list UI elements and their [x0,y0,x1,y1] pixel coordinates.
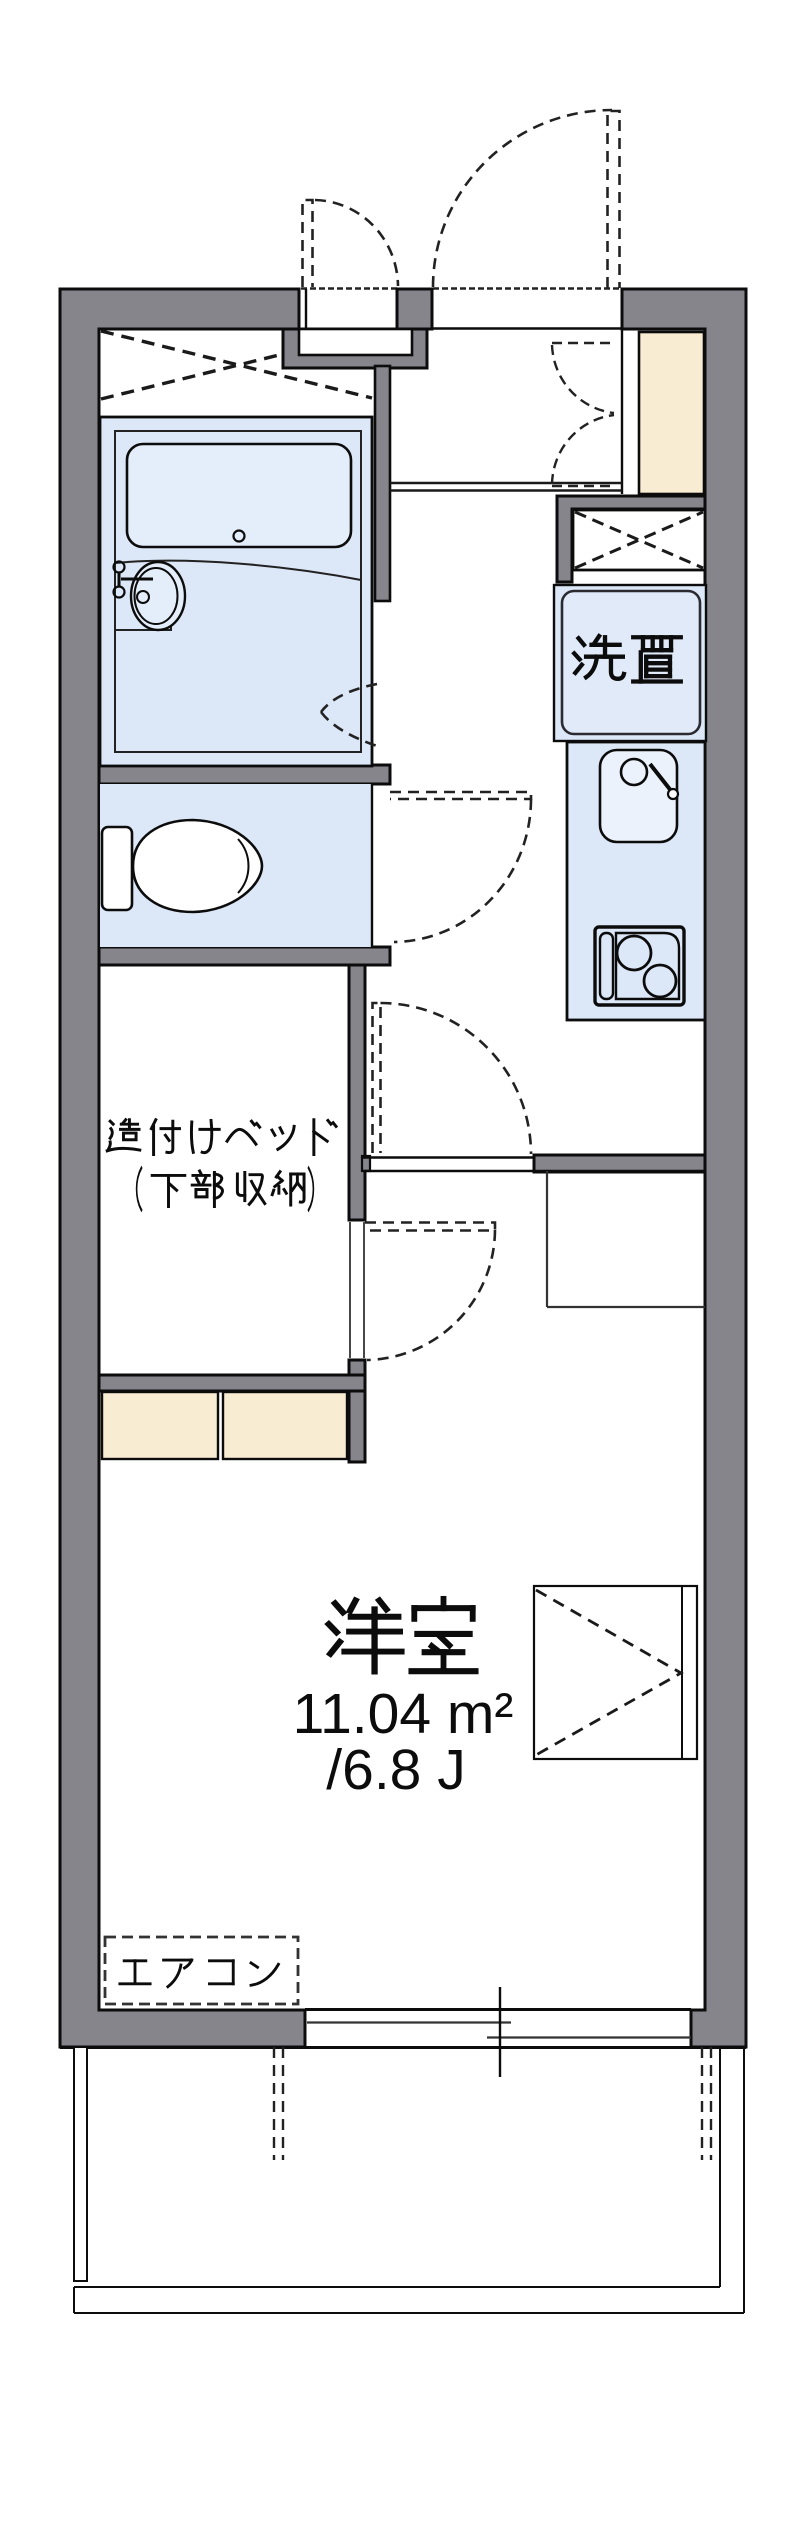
svg-text:/6.8 J: /6.8 J [326,1738,465,1802]
svg-text:11.04 m²: 11.04 m² [293,1682,514,1746]
